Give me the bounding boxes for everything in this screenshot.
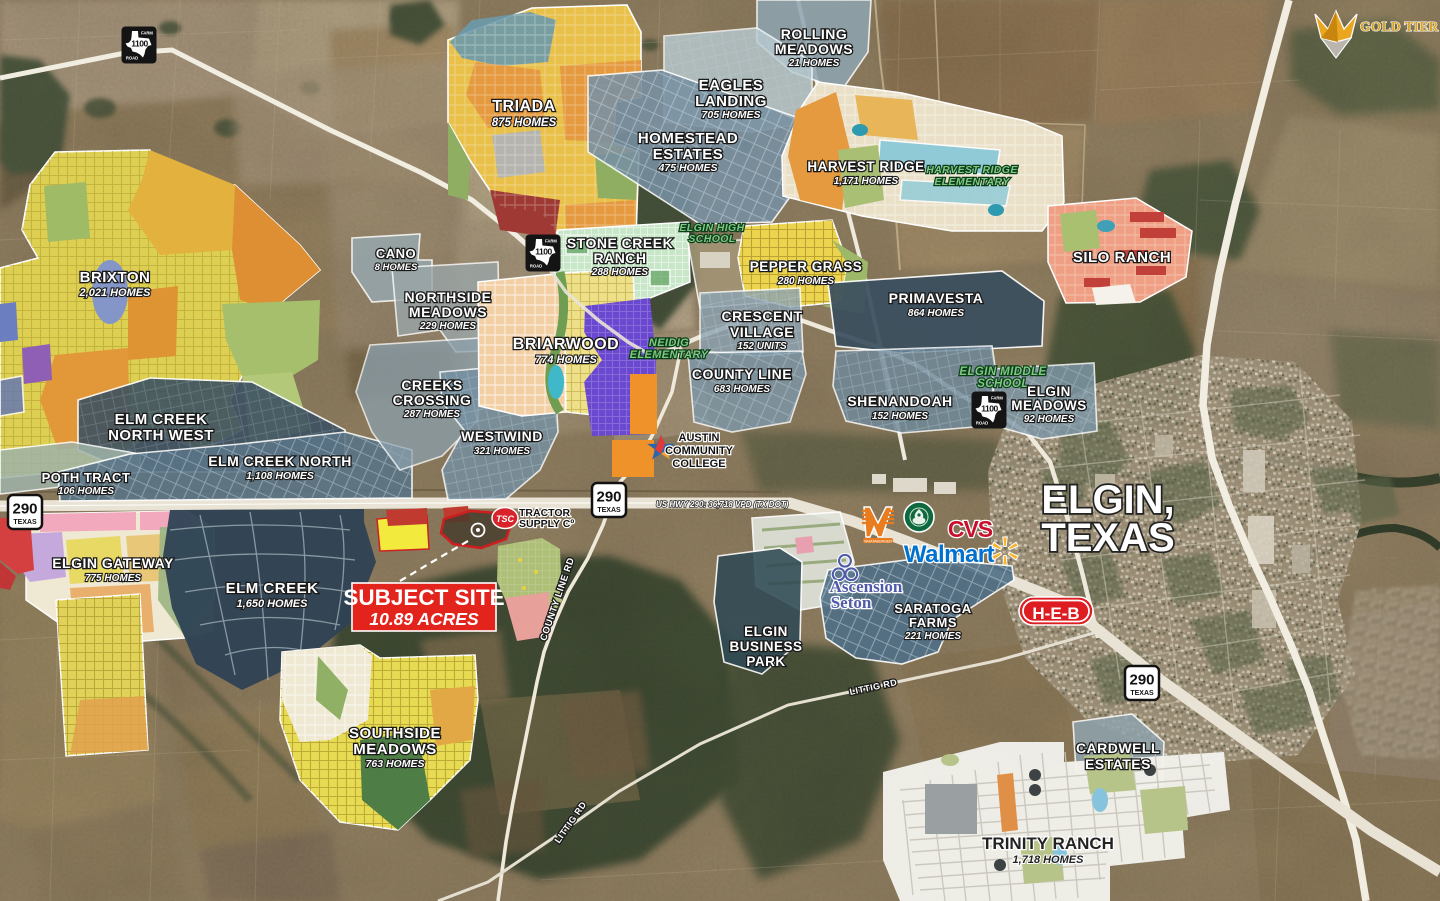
svg-text:ELM CREEK NORTH: ELM CREEK NORTH [208, 453, 352, 469]
svg-text:152 HOMES: 152 HOMES [872, 411, 928, 422]
svg-text:475 HOMES: 475 HOMES [658, 162, 718, 174]
svg-text:ELGIN GATEWAY: ELGIN GATEWAY [52, 555, 174, 571]
svg-text:BRIXTON: BRIXTON [80, 269, 151, 286]
svg-text:ESTATES: ESTATES [653, 146, 723, 163]
svg-text:Walmart: Walmart [904, 541, 995, 568]
svg-text:TRINITY RANCH: TRINITY RANCH [982, 834, 1114, 853]
svg-text:US HWY 290: 36,718 VPD (TX DOT: US HWY 290: 36,718 VPD (TX DOT) [656, 500, 789, 509]
svg-text:SOUTHSIDE: SOUTHSIDE [349, 725, 441, 742]
svg-text:COUNTY LINE: COUNTY LINE [692, 366, 792, 382]
svg-text:ELM CREEK: ELM CREEK [115, 411, 208, 428]
svg-text:H-E-B: H-E-B [1032, 604, 1079, 623]
svg-text:683 HOMES: 683 HOMES [714, 384, 770, 395]
svg-text:SUBJECT SITE: SUBJECT SITE [343, 585, 504, 610]
svg-text:92 HOMES: 92 HOMES [1024, 414, 1075, 425]
svg-text:ELGIN: ELGIN [1027, 384, 1071, 399]
svg-text:221 HOMES: 221 HOMES [904, 631, 961, 642]
svg-text:875 HOMES: 875 HOMES [492, 117, 557, 129]
svg-text:HOMESTEAD: HOMESTEAD [638, 130, 738, 147]
svg-text:763 HOMES: 763 HOMES [366, 758, 425, 770]
svg-text:SARATOGA: SARATOGA [894, 601, 971, 616]
svg-text:775 HOMES: 775 HOMES [85, 573, 141, 584]
svg-text:ELGIN: ELGIN [744, 624, 788, 639]
svg-text:152 UNITS: 152 UNITS [737, 341, 787, 352]
svg-text:ELEMENTARY: ELEMENTARY [630, 349, 710, 361]
svg-text:ESTATES: ESTATES [1085, 756, 1151, 772]
svg-text:SCHOOL: SCHOOL [977, 378, 1029, 390]
svg-text:Seton: Seton [831, 593, 872, 612]
svg-text:EAGLES: EAGLES [699, 77, 764, 94]
svg-text:280 HOMES: 280 HOMES [777, 276, 834, 287]
svg-text:ELM CREEK: ELM CREEK [226, 580, 319, 597]
svg-text:CRESCENT: CRESCENT [721, 308, 802, 324]
svg-text:TSC: TSC [496, 514, 515, 524]
svg-text:CREEKS: CREEKS [401, 377, 462, 393]
svg-text:ELEMENTARY: ELEMENTARY [934, 176, 1010, 188]
svg-text:POTH TRACT: POTH TRACT [42, 470, 131, 485]
svg-text:287 HOMES: 287 HOMES [403, 409, 460, 420]
svg-text:SILO RANCH: SILO RANCH [1073, 249, 1171, 266]
svg-text:1,650 HOMES: 1,650 HOMES [237, 598, 309, 610]
svg-text:FARMS: FARMS [909, 615, 957, 630]
svg-text:ELGIN MIDDLE: ELGIN MIDDLE [959, 366, 1046, 378]
svg-text:RANCH: RANCH [593, 250, 646, 266]
svg-text:CROSSING: CROSSING [393, 392, 472, 408]
svg-text:BRIARWOOD: BRIARWOOD [513, 336, 619, 353]
svg-text:SHENANDOAH: SHENANDOAH [847, 393, 952, 409]
svg-text:2,021 HOMES: 2,021 HOMES [79, 287, 152, 299]
svg-text:774 HOMES: 774 HOMES [535, 354, 597, 366]
svg-text:MEADOWS: MEADOWS [353, 741, 437, 758]
svg-text:MEADOWS: MEADOWS [409, 304, 487, 320]
svg-text:PARK: PARK [746, 654, 785, 669]
svg-text:705 HOMES: 705 HOMES [702, 109, 761, 121]
svg-text:BUSINESS: BUSINESS [729, 639, 802, 654]
svg-text:STONE CREEK: STONE CREEK [567, 235, 673, 251]
svg-text:PEPPER GRASS: PEPPER GRASS [750, 259, 863, 274]
svg-text:864 HOMES: 864 HOMES [908, 308, 964, 319]
svg-text:MEADOWS: MEADOWS [1011, 398, 1087, 413]
svg-text:SUPPLY Cº: SUPPLY Cº [519, 518, 574, 530]
svg-text:HARVEST RIDGE: HARVEST RIDGE [926, 164, 1018, 176]
svg-text:WHATABURGER: WHATABURGER [864, 540, 892, 544]
svg-text:ROLLING: ROLLING [781, 26, 848, 42]
svg-text:LANDING: LANDING [695, 93, 767, 110]
svg-text:8 HOMES: 8 HOMES [375, 262, 418, 273]
svg-text:HARVEST RIDGE: HARVEST RIDGE [807, 159, 924, 174]
svg-text:COLLEGE: COLLEGE [672, 458, 725, 470]
svg-text:1,108 HOMES: 1,108 HOMES [246, 470, 314, 482]
svg-text:106 HOMES: 106 HOMES [58, 486, 114, 497]
svg-text:1,171 HOMES: 1,171 HOMES [834, 176, 899, 187]
svg-text:288 HOMES: 288 HOMES [591, 267, 648, 278]
svg-text:GOLD TIER: GOLD TIER [1360, 19, 1439, 34]
svg-text:21 HOMES: 21 HOMES [788, 58, 840, 69]
svg-text:229 HOMES: 229 HOMES [419, 321, 476, 332]
svg-text:321 HOMES: 321 HOMES [474, 446, 530, 457]
svg-text:CARDWELL: CARDWELL [1076, 740, 1160, 756]
svg-text:WESTWIND: WESTWIND [461, 428, 543, 444]
svg-text:PRIMAVESTA: PRIMAVESTA [889, 290, 984, 306]
svg-text:SCHOOL: SCHOOL [688, 233, 735, 245]
svg-text:MEADOWS: MEADOWS [775, 41, 853, 57]
svg-text:TEXAS: TEXAS [1041, 516, 1174, 560]
svg-text:NORTHSIDE: NORTHSIDE [405, 289, 492, 305]
svg-text:CANO: CANO [376, 246, 416, 261]
svg-text:VILLAGE: VILLAGE [730, 324, 794, 340]
svg-text:1,718 HOMES: 1,718 HOMES [1013, 854, 1085, 866]
svg-text:COMMUNITY: COMMUNITY [665, 445, 733, 457]
svg-text:TRIADA: TRIADA [492, 98, 555, 115]
svg-text:NEIDIG: NEIDIG [649, 337, 689, 349]
svg-text:AUSTIN: AUSTIN [679, 432, 720, 444]
svg-text:NORTH WEST: NORTH WEST [108, 427, 214, 444]
svg-text:10.89 ACRES: 10.89 ACRES [369, 609, 479, 629]
svg-text:CVS: CVS [948, 516, 993, 542]
